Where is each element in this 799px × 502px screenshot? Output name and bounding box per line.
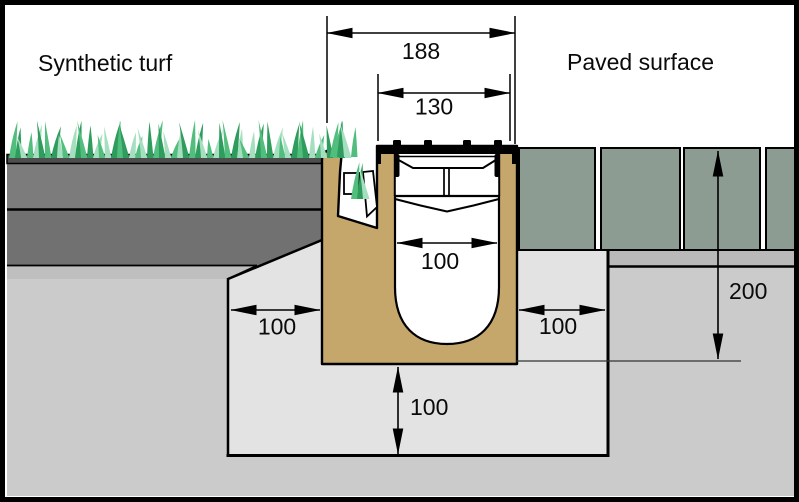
grass-blade	[104, 126, 111, 158]
grass-blade	[309, 126, 316, 158]
grate-bolt	[494, 140, 502, 146]
diagram-svg: Synthetic turf Paved surface 188 130 100…	[0, 0, 799, 502]
grate-edge-rail	[376, 145, 517, 154]
grass-blade	[189, 120, 196, 158]
grate-clip-left	[395, 154, 400, 177]
dim-label-100-base: 100	[410, 394, 448, 420]
bedding-band-right	[609, 251, 794, 266]
rail-end-left	[376, 145, 381, 164]
dim-label-188: 188	[402, 38, 440, 64]
grass-blade	[351, 127, 358, 157]
label-paved-surface: Paved surface	[567, 49, 714, 75]
grass-blade	[147, 121, 154, 158]
grate-bolt	[463, 140, 471, 146]
paver-block	[519, 148, 595, 250]
grass-blade	[129, 132, 136, 158]
dim-label-100-right: 100	[539, 313, 577, 339]
grate-bolt	[393, 140, 401, 146]
paver-block	[601, 148, 680, 250]
dim-label-130: 130	[415, 94, 453, 120]
grate-clip-right	[495, 154, 500, 177]
grass-blade	[45, 121, 52, 158]
paved-surface-blocks	[519, 148, 797, 250]
label-synthetic-turf: Synthetic turf	[38, 50, 173, 76]
dim-label-100-left: 100	[258, 314, 296, 340]
grass-blade	[207, 139, 214, 158]
bedding-band-left	[7, 265, 257, 279]
grate-zone	[394, 153, 500, 196]
installation-cross-section-diagram: Synthetic turf Paved surface 188 130 100…	[0, 0, 799, 502]
paver-block	[766, 148, 797, 250]
grass-blade	[27, 132, 34, 158]
grate-bolt	[424, 140, 432, 146]
grass-blade	[249, 131, 256, 158]
grass-blade	[87, 125, 94, 158]
dim-label-100-channel: 100	[421, 248, 459, 274]
rail-end-right	[512, 145, 517, 164]
grass-blade	[267, 122, 274, 158]
turf-base-layer-upper	[7, 163, 323, 209]
paver-block	[684, 148, 760, 250]
dim-label-200: 200	[729, 278, 767, 304]
